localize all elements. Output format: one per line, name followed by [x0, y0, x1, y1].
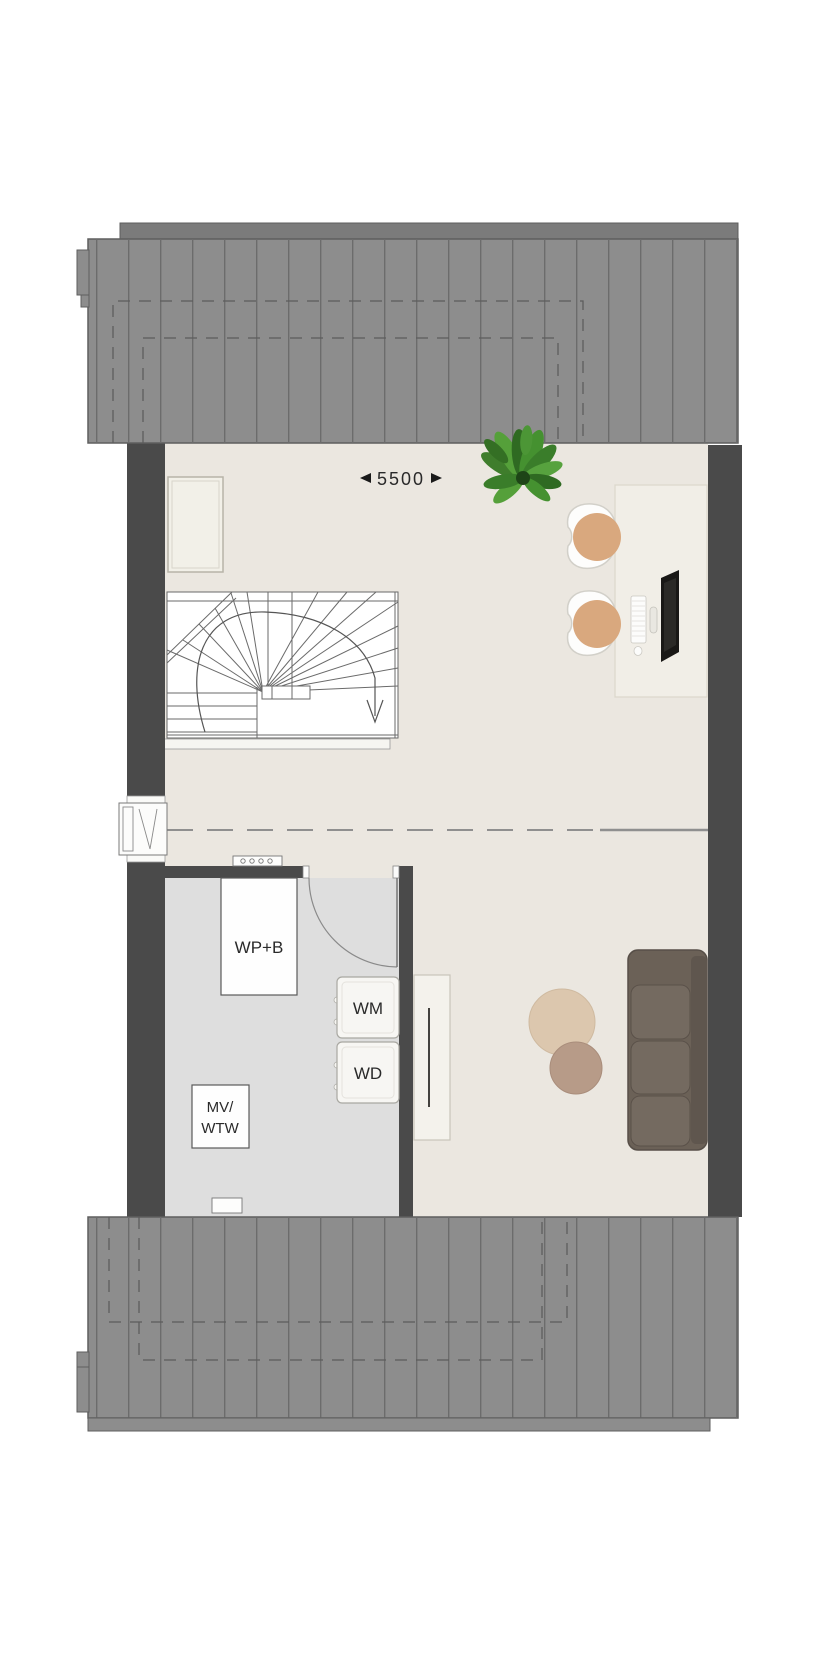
mouse [634, 647, 642, 656]
left-wall-window [119, 796, 167, 862]
monitor-stand [650, 607, 657, 633]
coffee-table-small [550, 1042, 602, 1094]
stair-ledge [148, 739, 390, 749]
sofa [628, 950, 707, 1150]
ventilation-unit: MV/ WTW [192, 1085, 249, 1148]
chair-cushion [573, 513, 621, 561]
staircase [148, 592, 398, 749]
monitor-screen [664, 578, 676, 652]
washer-label: WM [353, 999, 383, 1018]
sofa-cushion [631, 985, 690, 1039]
dimension-value: 5500 [377, 469, 425, 489]
roof-top [77, 223, 738, 443]
wall-vent-grille [233, 856, 282, 866]
roof-bottom [77, 1217, 738, 1431]
floor-plan-canvas: WP+B MV/ WTW WM WD [0, 0, 819, 1670]
left-wall-upper [127, 443, 165, 803]
heat-pump-unit: WP+B [221, 878, 297, 995]
stair-newel [262, 686, 310, 699]
cabinet-top-left [168, 477, 223, 572]
sideboard-cabinet [414, 975, 450, 1140]
sofa-backrest [691, 956, 707, 1144]
keyboard [631, 596, 646, 643]
sofa-cushion [631, 1041, 690, 1094]
door-jamb-left [303, 866, 309, 878]
ventilation-label-line1: MV/ [207, 1099, 235, 1116]
roof-eave-band [88, 1418, 710, 1431]
heat-pump-label: WP+B [235, 938, 284, 957]
desk [615, 485, 707, 697]
ventilation-label-line2: WTW [201, 1120, 239, 1137]
left-wall-lower [127, 855, 165, 1217]
floor-vent [212, 1198, 242, 1213]
technical-room-top-wall [165, 866, 303, 878]
roof-edge-detail [77, 1352, 89, 1412]
roof-edge-detail [77, 250, 89, 295]
right-wall [708, 445, 742, 1217]
floor-plan-drawing: WP+B MV/ WTW WM WD [0, 0, 819, 1670]
dryer: WD [334, 1042, 399, 1103]
roof-edge-detail [81, 295, 89, 307]
plant-pot-center [516, 471, 530, 485]
technical-room-right-wall [399, 866, 413, 1217]
chair-cushion [573, 600, 621, 648]
washing-machine: WM [334, 977, 399, 1038]
sofa-cushion [631, 1096, 690, 1146]
door-jamb-right [393, 866, 399, 878]
dryer-label: WD [354, 1064, 382, 1083]
